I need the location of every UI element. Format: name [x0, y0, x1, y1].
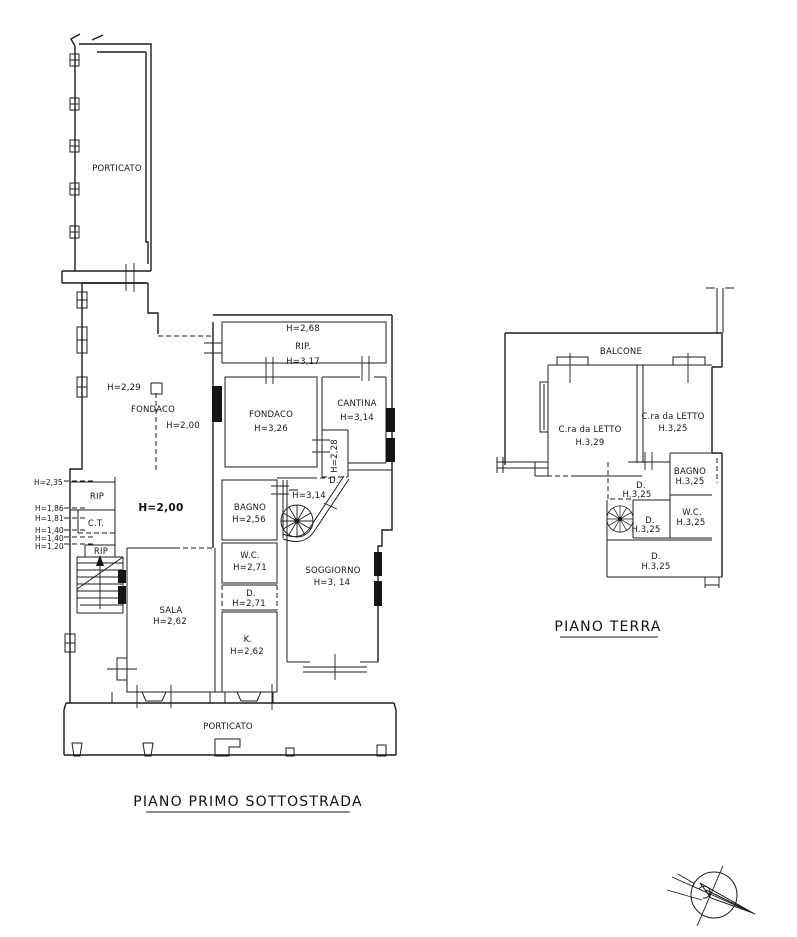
room-label-k: K.: [244, 635, 253, 645]
room-label-rip1: RIP: [90, 492, 104, 502]
primo-outer-walls: [70, 283, 392, 703]
room-label-soggiorno: SOGGIORNO: [305, 566, 360, 576]
label-rip-h-lower: H=3,17: [286, 357, 320, 367]
door-panel-fondaco: [212, 386, 222, 422]
room-label-d: D.: [246, 589, 256, 599]
soggiorno-walls: [287, 480, 378, 672]
label-hall-h-bold: H=2,00: [138, 502, 183, 514]
room-label-ct: C.T.: [88, 519, 104, 529]
porticato-top-walls: [71, 34, 151, 271]
label-d1-h: H.3,25: [622, 490, 651, 500]
label-wc-h: H=2,71: [233, 563, 267, 573]
plan-piano-primo-sottostrada: PORTICATO H=2,68 RIP. H=3,17 H=2,29 FOND…: [34, 34, 396, 812]
room-label-d3: D.: [651, 552, 661, 562]
porticato-bottom-band: [62, 271, 151, 283]
label-letto1-h: H.3,29: [575, 438, 604, 448]
terra-section-stub: [706, 288, 734, 333]
porticato-band-ticks: [126, 263, 134, 292]
straight-staircase: [77, 555, 123, 613]
primo-open-windows: [65, 292, 127, 680]
label-stair-hall-h: H=3,14: [292, 491, 326, 501]
label-d2-h: H.3,25: [631, 525, 660, 535]
spiral-staircase-terra: [607, 506, 633, 532]
label-corridor-h: H=2,28: [330, 439, 340, 473]
label-d3-h: H.3,25: [641, 562, 670, 572]
floor-plan-canvas: PORTICATO H=2,68 RIP. H=3,17 H=2,29 FOND…: [0, 0, 797, 937]
label-h181: H=1,81: [35, 514, 64, 523]
room-label-rip-top: RIP.: [295, 342, 311, 352]
label-k-h: H=2,62: [230, 647, 264, 657]
room-label-cantina: CANTINA: [337, 399, 376, 409]
label-h120: H=1,20: [35, 542, 64, 551]
label-cantina-h: H=3,14: [340, 413, 374, 423]
fondaco-mid-walls: [225, 377, 317, 467]
label-rip-h-upper: H=2,68: [286, 324, 320, 334]
label-bagno-h: H=2,56: [232, 515, 266, 525]
label-door-d-top: D.: [329, 476, 339, 486]
left-rooms-dashes: [64, 481, 115, 544]
room-label-wc: W.C.: [240, 551, 260, 561]
label-wc-terra-h: H.3,25: [676, 518, 705, 528]
room-label-bagno: BAGNO: [234, 503, 266, 513]
fondaco-left-dashes: [156, 336, 213, 548]
diagonal-door-tick: [324, 503, 337, 509]
floor-plan-page: PORTICATO H=2,68 RIP. H=3,17 H=2,29 FOND…: [0, 0, 797, 937]
terra-window-left: [540, 382, 548, 432]
label-h229: H=2,29: [107, 383, 141, 393]
label-fondaco-mid-h: H=3,26: [254, 424, 288, 434]
label-soggiorno-h: H=3, 14: [314, 578, 351, 588]
room-label-wc-terra: W.C.: [682, 508, 702, 518]
plan-piano-terra: BALCONE C.ra da LETTO H.3,29 C.ra da LET…: [497, 288, 734, 637]
label-sala-h: H=2,62: [153, 617, 187, 627]
room-label-balcone: BALCONE: [600, 347, 642, 357]
room-label-porticato-top: PORTICATO: [92, 164, 142, 174]
label-d-h: H=2,71: [232, 599, 266, 609]
fondaco-pillar: [151, 383, 162, 394]
compass-north-arrow-icon: [667, 866, 755, 926]
room-label-porticato-bottom: PORTICATO: [203, 722, 253, 732]
room-label-fondaco-mid: FONDACO: [249, 410, 293, 420]
plan-title-primo: PIANO PRIMO SOTTOSTRADA: [133, 794, 363, 810]
room-label-bagno-terra: BAGNO: [674, 467, 706, 477]
plan-title-terra: PIANO TERRA: [554, 619, 661, 635]
room-label-rip2: RIP: [94, 547, 108, 557]
room-label-letto1: C.ra da LETTO: [559, 425, 622, 435]
spiral-staircase-primo: [281, 505, 313, 537]
room-label-fondaco-left: FONDACO: [131, 405, 175, 415]
porticato-bottom-pillars: [72, 739, 386, 756]
label-h186: H=1,86: [35, 504, 64, 513]
room-label-letto2: C.ra da LETTO: [642, 412, 705, 422]
label-h235: H=2,35: [34, 478, 63, 487]
entry-vestibules: [112, 692, 273, 703]
label-bagno-terra-h: H.3,25: [675, 477, 704, 487]
label-letto2-h: H.3,25: [658, 424, 687, 434]
label-h200: H=2,00: [166, 421, 200, 431]
room-label-sala: SALA: [160, 606, 183, 616]
diagonal-passage-walls: [283, 476, 349, 541]
